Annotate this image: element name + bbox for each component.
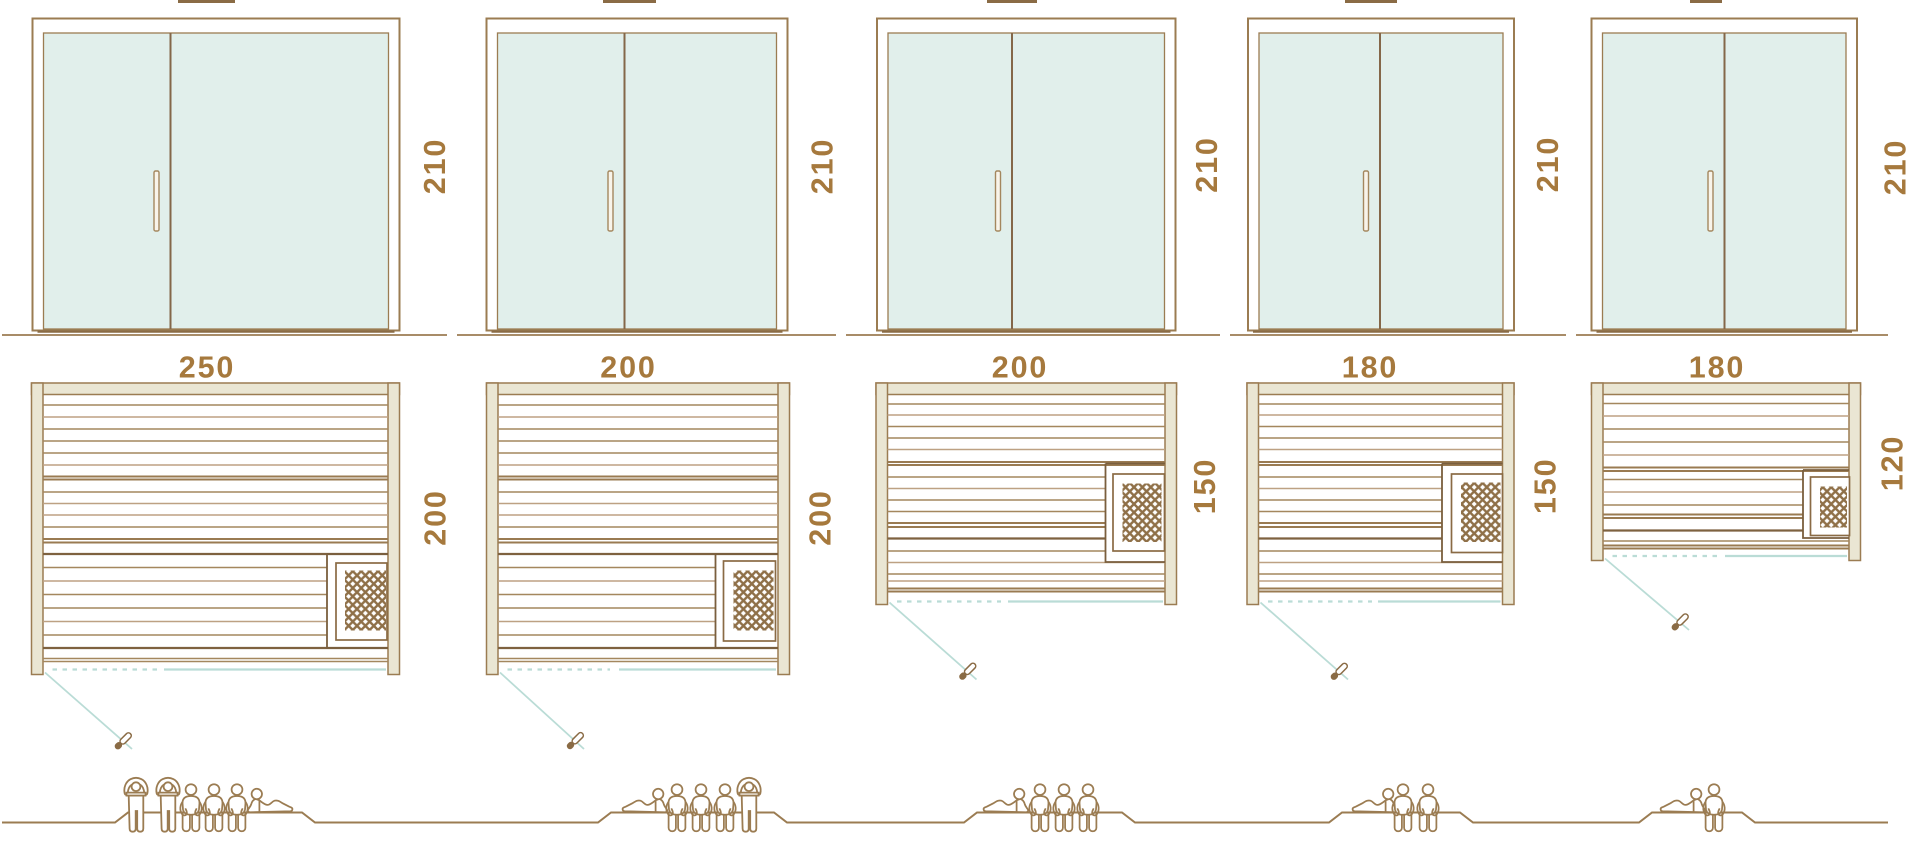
svg-text:200: 200	[992, 351, 1049, 385]
svg-text:150: 150	[1188, 458, 1222, 515]
svg-text:180: 180	[1342, 351, 1399, 385]
svg-text:120: 120	[1876, 435, 1910, 492]
svg-text:180: 180	[1689, 351, 1746, 385]
svg-text:150: 150	[1529, 458, 1563, 515]
svg-text:250: 250	[179, 351, 236, 385]
svg-text:210: 210	[418, 138, 452, 195]
svg-text:200: 200	[600, 351, 657, 385]
svg-text:200: 200	[804, 489, 838, 546]
svg-text:210: 210	[1190, 136, 1224, 193]
svg-text:200: 200	[419, 489, 453, 546]
svg-text:210: 210	[1879, 139, 1913, 196]
svg-text:210: 210	[806, 138, 840, 195]
svg-text:210: 210	[1531, 136, 1565, 193]
